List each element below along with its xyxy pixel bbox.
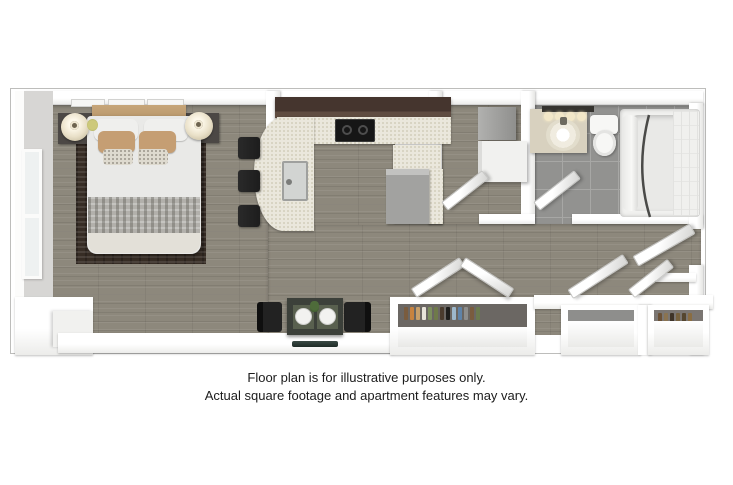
hanging-garment <box>458 307 462 320</box>
hanging-garment <box>440 307 444 320</box>
shower-curtain-rod <box>609 107 661 221</box>
closet-b-shelf <box>568 321 634 347</box>
table-lamp <box>61 113 89 141</box>
table-lamp <box>185 112 213 140</box>
hanging-garment <box>452 307 456 320</box>
hanging-garment <box>404 307 408 320</box>
hanging-garment <box>422 307 426 320</box>
kitchen-counter-right-side <box>429 169 443 224</box>
hanging-garment <box>434 307 438 320</box>
disclaimer-text: Floor plan is for illustrative purposes … <box>0 369 733 405</box>
closet-a-shelf <box>398 327 527 347</box>
bar-stool <box>238 170 260 192</box>
hall-wall-segment-2 <box>479 214 535 224</box>
hanging-garment <box>464 307 468 320</box>
closet-c-shelf <box>654 321 703 347</box>
disclaimer-line-1: Floor plan is for illustrative purposes … <box>0 369 733 387</box>
vanity-light-bulb <box>544 112 553 121</box>
dining-chair-right <box>344 302 371 332</box>
bar-stool <box>238 205 260 227</box>
bedroom-window <box>22 149 42 279</box>
bed-foot-cover <box>88 233 200 253</box>
window-mullion <box>25 214 39 218</box>
wall-mounted-tv <box>292 341 338 347</box>
bar-stool <box>238 137 260 159</box>
bed-blanket <box>88 197 200 233</box>
hanging-garment <box>416 307 420 320</box>
hanging-garment <box>428 307 432 320</box>
disclaimer-line-2: Actual square footage and apartment feat… <box>0 387 733 405</box>
nightstand-plant <box>87 119 98 131</box>
faucet-icon <box>286 179 292 185</box>
hanging-garment <box>410 307 414 320</box>
apartment-floor-plan-figure: Floor plan is for illustrative purposes … <box>0 0 733 485</box>
vanity-light-bulb <box>577 112 586 121</box>
hanging-garment <box>470 307 474 320</box>
burner <box>358 125 368 135</box>
hanging-garment <box>446 307 450 320</box>
sink-faucet-icon <box>560 117 567 125</box>
shower-tile-wall <box>673 111 699 215</box>
kitchen-counter-right <box>393 145 441 170</box>
hanging-garment <box>476 307 480 320</box>
bottom-exterior-wall <box>58 333 394 353</box>
water-heater-cabinet <box>478 107 516 140</box>
upper-cabinets <box>275 97 451 118</box>
vanity-light-bar <box>542 106 594 112</box>
refrigerator <box>386 169 429 224</box>
cooktop <box>335 119 375 142</box>
bed <box>87 116 201 254</box>
burner <box>342 125 352 135</box>
dining-chair-left <box>257 302 282 332</box>
dinner-plate <box>295 308 312 325</box>
kitchen-floor <box>311 141 395 225</box>
floor-plan-border <box>10 88 706 354</box>
bed-pillow-accent <box>103 149 133 165</box>
dinner-plate <box>319 308 336 325</box>
table-plant <box>310 301 319 312</box>
kitchen-sink <box>282 161 308 201</box>
bed-pillow-accent <box>138 149 168 165</box>
